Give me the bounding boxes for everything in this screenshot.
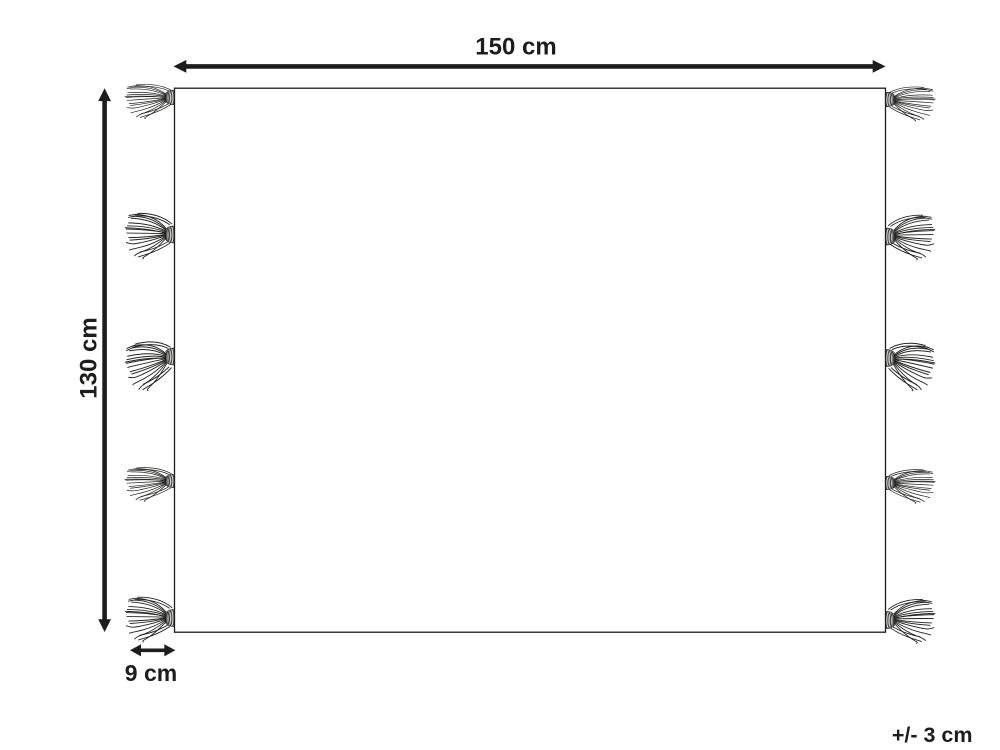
svg-text:130 cm: 130 cm <box>76 317 103 398</box>
svg-text:150 cm: 150 cm <box>475 34 556 61</box>
svg-text:9 cm: 9 cm <box>125 660 177 686</box>
svg-text:+/- 3 cm: +/- 3 cm <box>892 723 973 747</box>
